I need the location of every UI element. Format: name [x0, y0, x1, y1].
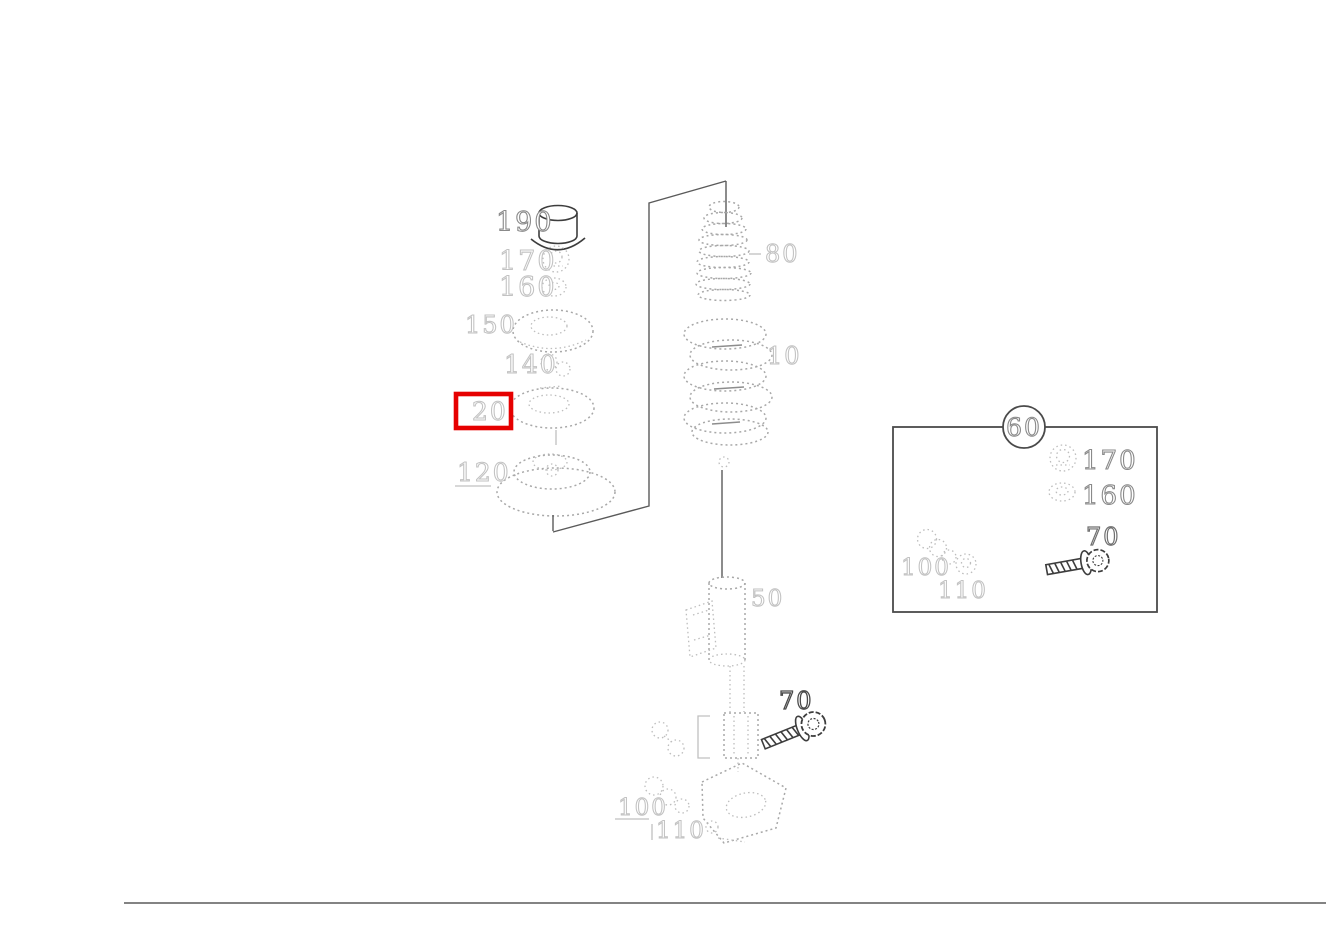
inset-callout-160[interactable]: 160 — [1082, 481, 1138, 511]
callout-120[interactable]: 120 — [457, 458, 511, 487]
spring-pad-icon — [510, 386, 594, 445]
spring-perch-bracket-icon — [686, 601, 716, 657]
coil-spring-icon — [684, 319, 772, 445]
callout-20-selected[interactable]: 20 — [472, 397, 508, 426]
inset-callout-170[interactable]: 170 — [1082, 446, 1138, 476]
callout-150[interactable]: 150 — [465, 311, 517, 339]
callout-110[interactable]: 110 — [656, 818, 706, 844]
dust-boot-icon — [696, 202, 751, 301]
clamp-hardware-icon — [652, 722, 684, 756]
shock-absorber-icon — [698, 457, 758, 772]
callout-70[interactable]: 70 — [779, 687, 814, 715]
callout-10[interactable]: 10 — [767, 342, 802, 370]
callout-190[interactable]: 190 — [496, 207, 554, 238]
inset-group-label[interactable]: 60 — [1006, 413, 1042, 442]
inset-callout-110[interactable]: 110 — [938, 578, 988, 604]
inset-nut-icon — [1050, 445, 1076, 471]
callout-160[interactable]: 160 — [499, 272, 557, 303]
inset-callout-70[interactable]: 70 — [1086, 523, 1121, 551]
callout-50[interactable]: 50 — [751, 586, 784, 612]
callout-80[interactable]: 80 — [765, 240, 800, 268]
callout-140[interactable]: 140 — [504, 350, 558, 379]
parts-diagram-canvas: 190 170 160 150 140 20 120 80 10 50 70 1… — [0, 0, 1326, 938]
inset-bolt-icon — [1045, 547, 1111, 582]
strut-mount-icon — [513, 310, 593, 352]
fork-bracket-icon — [702, 763, 786, 843]
inset-washer-icon — [1049, 483, 1075, 501]
inset-locknut-icon — [956, 554, 976, 574]
